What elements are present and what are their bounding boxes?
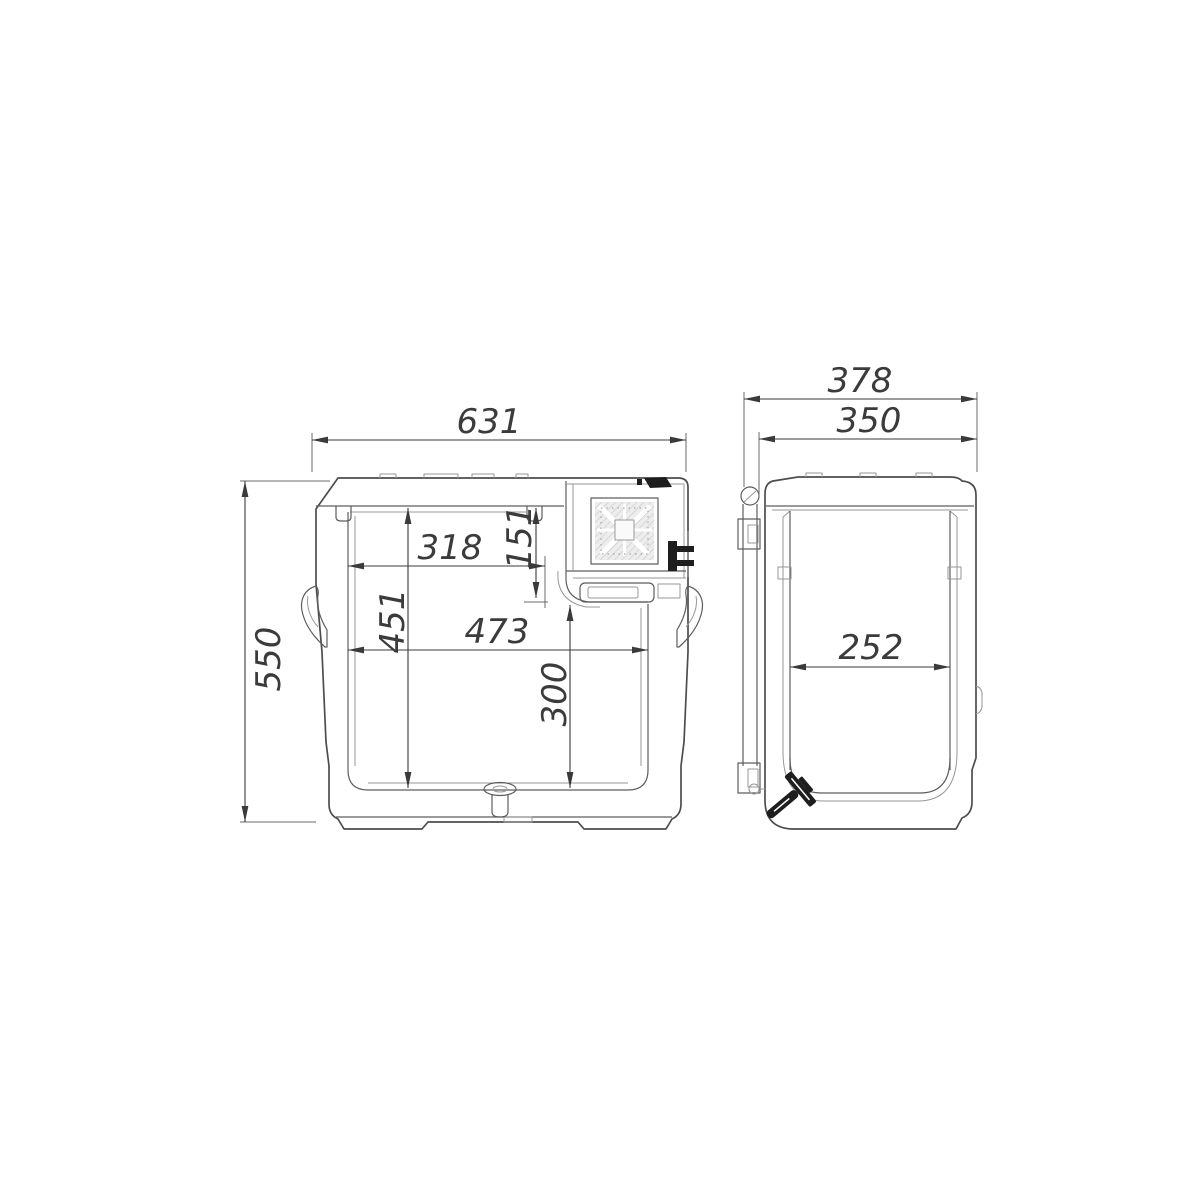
dim-label-overall-height: 550 <box>249 627 289 692</box>
dim-label-interior-width: 473 <box>465 612 530 652</box>
cooler-dimension-drawing: 631 550 318 151 451 473 300 <box>0 0 1200 1200</box>
technical-drawing-page: 631 550 318 151 451 473 300 <box>0 0 1200 1200</box>
dim-label-side-interior-width: 252 <box>839 628 904 668</box>
dim-label-top-interior-width: 318 <box>418 528 483 568</box>
dim-label-overall-width: 631 <box>457 402 522 442</box>
dim-label-interior-depth: 451 <box>373 589 413 654</box>
fan-grille-icon <box>591 498 658 564</box>
dim-label-overall-depth: 378 <box>828 361 893 401</box>
dim-label-body-depth: 350 <box>837 401 902 441</box>
dim-label-lower-interior-depth: 300 <box>535 662 575 727</box>
dim-label-compressor-recess: 151 <box>500 505 540 570</box>
page-background <box>0 0 1200 1200</box>
